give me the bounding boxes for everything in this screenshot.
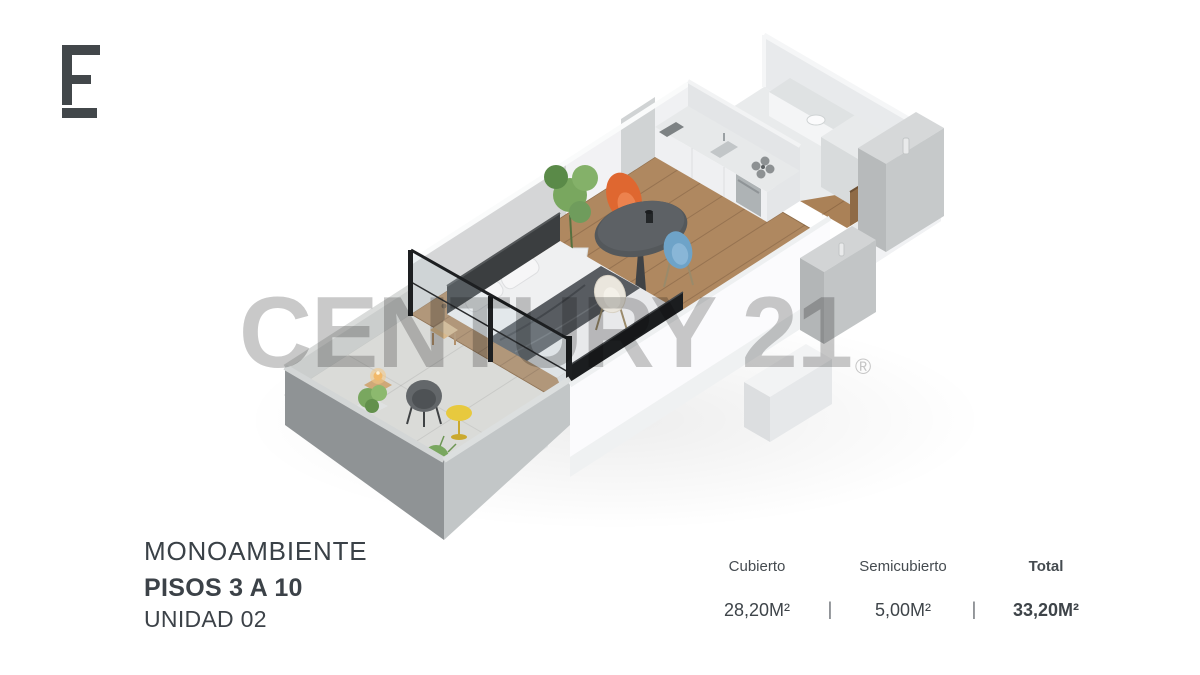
logo-bar xyxy=(62,108,97,118)
table-vase xyxy=(646,213,653,223)
developer-logo xyxy=(62,45,102,119)
flyer-page: CENTURY 21® MONOAMBIENTE PISOS 3 A 10 UN… xyxy=(0,0,1200,675)
registered-trademark-symbol: ® xyxy=(855,354,870,379)
logo-bar xyxy=(62,45,100,55)
unit-floors-label: PISOS 3 A 10 xyxy=(144,574,367,603)
vent-pipe xyxy=(839,243,844,256)
logo-bar xyxy=(62,75,91,84)
unit-type-title: MONOAMBIENTE xyxy=(144,536,367,567)
unit-number-label: UNIDAD 02 xyxy=(144,606,367,633)
unit-info: MONOAMBIENTE PISOS 3 A 10 UNIDAD 02 xyxy=(144,536,367,633)
vent-pipe xyxy=(903,138,909,154)
watermark-text: CENTURY 21 xyxy=(239,277,852,389)
century21-watermark: CENTURY 21® xyxy=(239,283,870,384)
bathroom-sink xyxy=(807,115,825,125)
